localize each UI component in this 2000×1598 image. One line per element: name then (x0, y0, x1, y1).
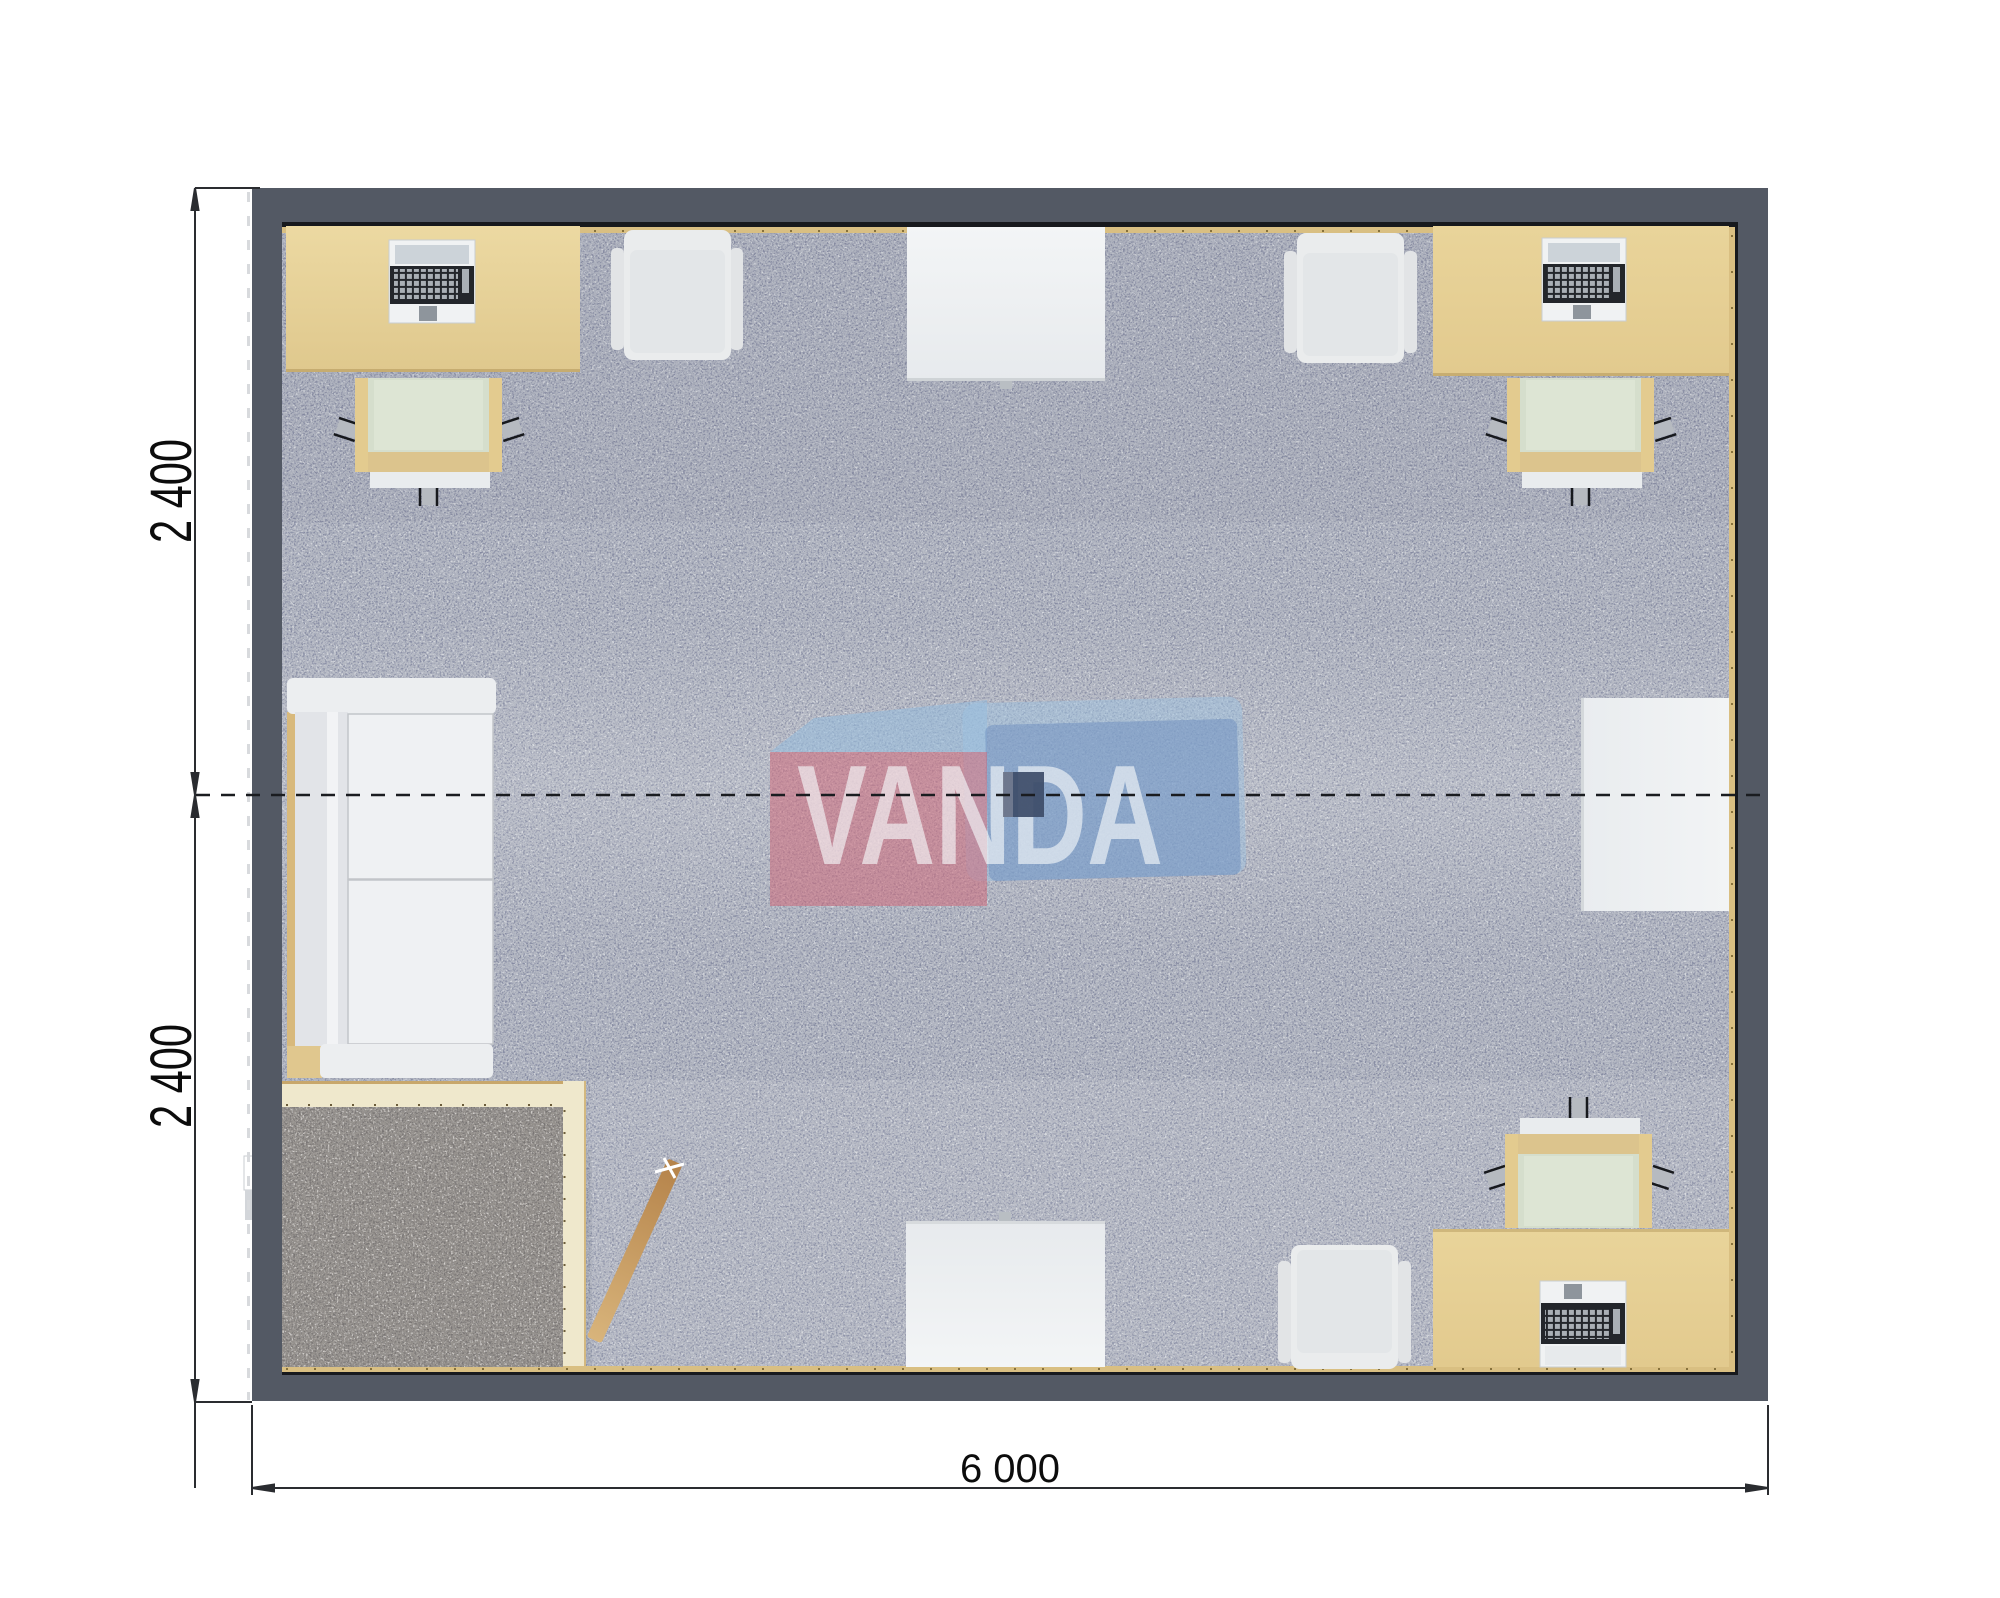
svg-text:6 000: 6 000 (960, 1447, 1060, 1491)
svg-text:2 400: 2 400 (139, 1024, 204, 1128)
svg-text:VANDA: VANDA (797, 736, 1163, 895)
svg-text:2 400: 2 400 (139, 439, 204, 543)
